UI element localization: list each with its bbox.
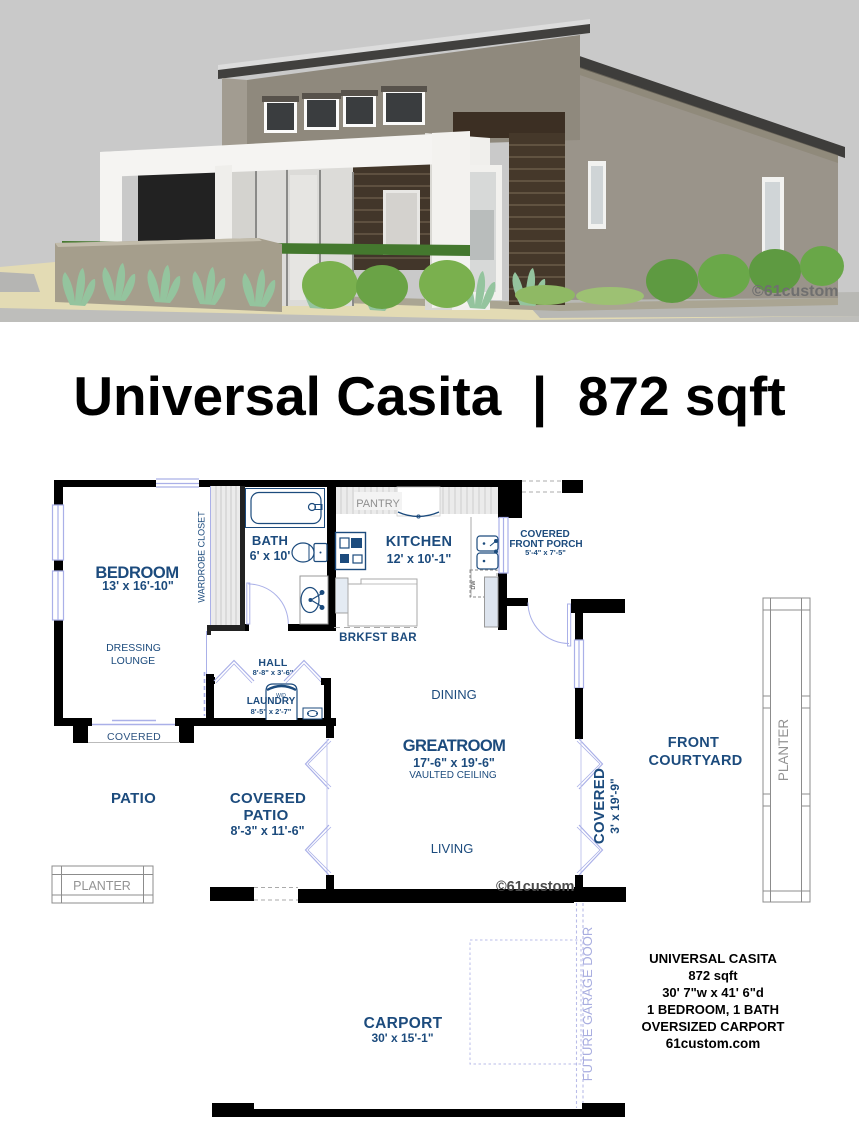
- svg-text:LAUNDRY: LAUNDRY: [247, 696, 296, 707]
- svg-text:DRESSING: DRESSING: [106, 642, 161, 654]
- svg-text:GREATROOM: GREATROOM: [403, 737, 505, 755]
- svg-text:DW: DW: [471, 580, 477, 590]
- svg-text:1 BEDROOM, 1 BATH: 1 BEDROOM, 1 BATH: [647, 1002, 779, 1017]
- svg-text:BRKFST BAR: BRKFST BAR: [339, 632, 417, 644]
- svg-text:5'-4" x 7'-5": 5'-4" x 7'-5": [525, 548, 566, 557]
- svg-text:6' x 10': 6' x 10': [250, 549, 291, 563]
- svg-text:61custom.com: 61custom.com: [666, 1036, 761, 1051]
- svg-text:©61custom: ©61custom: [496, 879, 574, 895]
- svg-text:©61custom: ©61custom: [752, 283, 838, 300]
- svg-text:8'-3" x 11'-6": 8'-3" x 11'-6": [230, 824, 304, 838]
- svg-text:872 sqft: 872 sqft: [688, 968, 738, 983]
- svg-text:8'-5" x 2'-7": 8'-5" x 2'-7": [251, 707, 292, 716]
- svg-text:30' 7"w x 41' 6"d: 30' 7"w x 41' 6"d: [662, 985, 764, 1000]
- svg-text:COVERED: COVERED: [230, 790, 306, 807]
- svg-text:30' x 15'-1": 30' x 15'-1": [371, 1031, 433, 1045]
- svg-text:8'-8" x 3'-6": 8'-8" x 3'-6": [253, 668, 294, 677]
- svg-text:COURTYARD: COURTYARD: [648, 753, 742, 769]
- svg-text:13' x 16'-10": 13' x 16'-10": [102, 579, 174, 593]
- svg-text:PATIO: PATIO: [243, 807, 288, 824]
- svg-text:PLANTER: PLANTER: [73, 879, 131, 893]
- svg-text:PANTRY: PANTRY: [356, 498, 400, 510]
- svg-text:PLANTER: PLANTER: [776, 719, 791, 782]
- svg-text:VAULTED CEILING: VAULTED CEILING: [409, 770, 497, 781]
- svg-text:FUTURE GARAGE DOOR: FUTURE GARAGE DOOR: [580, 927, 595, 1082]
- svg-text:LIVING: LIVING: [431, 841, 474, 856]
- svg-text:OVERSIZED CARPORT: OVERSIZED CARPORT: [641, 1019, 784, 1034]
- svg-text:17'-6" x 19'-6": 17'-6" x 19'-6": [413, 756, 495, 770]
- svg-text:UNIVERSAL CASITA: UNIVERSAL CASITA: [649, 951, 777, 966]
- svg-text:LOUNGE: LOUNGE: [111, 655, 155, 667]
- svg-text:PATIO: PATIO: [111, 790, 156, 807]
- svg-text:3' x 19'-9": 3' x 19'-9": [608, 778, 622, 833]
- svg-text:KITCHEN: KITCHEN: [386, 534, 453, 550]
- svg-text:COVERED: COVERED: [107, 731, 161, 743]
- svg-text:DINING: DINING: [431, 687, 477, 702]
- svg-text:BATH: BATH: [252, 533, 288, 548]
- svg-text:COVERED: COVERED: [591, 768, 608, 844]
- svg-text:FRONT: FRONT: [668, 735, 719, 751]
- svg-text:CARPORT: CARPORT: [364, 1015, 443, 1032]
- svg-text:WARDROBE CLOSET: WARDROBE CLOSET: [197, 511, 207, 603]
- svg-text:12' x 10'-1": 12' x 10'-1": [387, 552, 452, 566]
